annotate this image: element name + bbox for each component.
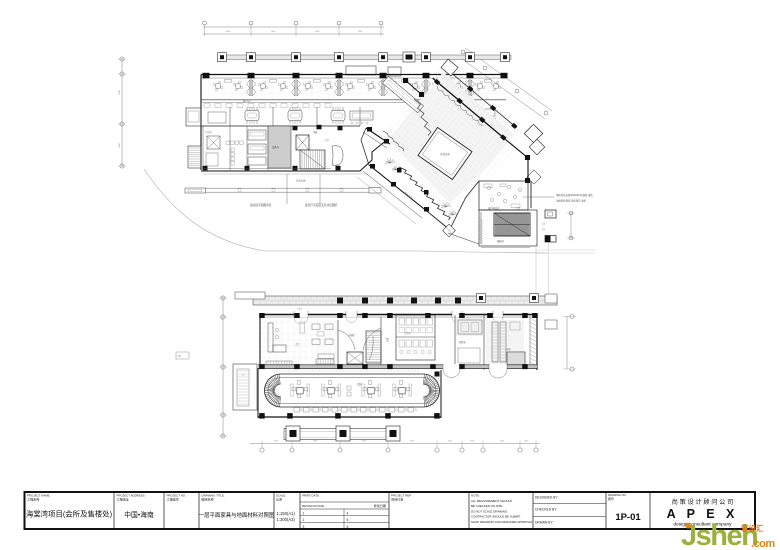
svg-text:DO NOT SCALE DRAWING.: DO NOT SCALE DRAWING. [471, 509, 508, 513]
svg-text:中国•海南: 中国•海南 [124, 510, 154, 519]
svg-text:2: 2 [303, 518, 305, 522]
svg-text:1:300(A3): 1:300(A3) [277, 517, 296, 522]
svg-text:大厅: 大厅 [295, 342, 300, 346]
svg-text:会议厅平面及天花详见图纸: 会议厅平面及天花详见图纸 [305, 203, 338, 207]
svg-text:1: 1 [303, 512, 305, 516]
svg-text:BE CHECKED ON SITE.: BE CHECKED ON SITE. [471, 504, 503, 508]
svg-text:运动馆平面图详见: 运动馆平面图详见 [250, 203, 272, 207]
svg-text:1:150(A1): 1:150(A1) [277, 511, 296, 516]
svg-text:修改日期: 修改日期 [374, 503, 386, 508]
svg-text:7500: 7500 [119, 89, 121, 95]
svg-text:海棠湾项目(会所及售楼处): 海棠湾项目(会所及售楼处) [26, 510, 112, 519]
svg-text:图纸名称: 图纸名称 [202, 497, 214, 502]
svg-text:外部走廊: 外部走廊 [296, 179, 306, 183]
svg-text:REVISION DATE :: REVISION DATE : [302, 504, 326, 508]
svg-text:DRAWN BY:: DRAWN BY: [535, 521, 553, 525]
svg-text:CONTRACTOR SHOULD BE SUBMIT: CONTRACTOR SHOULD BE SUBMIT [471, 515, 521, 519]
svg-text:电梯厅: 电梯厅 [348, 333, 356, 337]
svg-text:边框用防滑砖 深色拼花 浅色: 边框用防滑砖 深色拼花 浅色 [556, 199, 587, 203]
svg-text:工程地址: 工程地址 [117, 497, 129, 502]
svg-text:工程编号: 工程编号 [167, 497, 179, 502]
svg-text:.com: .com [751, 538, 775, 550]
svg-text:图号: 图号 [608, 496, 614, 501]
svg-text:餐厅区: 餐厅区 [243, 99, 251, 103]
svg-text:NOTE:: NOTE: [471, 494, 480, 498]
svg-text:异形泳池: 异形泳池 [440, 152, 450, 156]
svg-text:6: 6 [347, 525, 349, 529]
svg-text:DESIGNED BY :: DESIGNED BY : [535, 496, 559, 500]
svg-text:ALL MEASUREMENT SHOULD: ALL MEASUREMENT SHOULD [471, 499, 512, 503]
svg-text:SHOP DRAWING FOR DESIGNER APPR: SHOP DRAWING FOR DESIGNER APPROVAL. [471, 520, 534, 524]
svg-text:项目代表: 项目代表 [391, 497, 403, 502]
svg-text:5: 5 [347, 518, 349, 522]
svg-text:入口: 入口 [297, 306, 302, 310]
svg-text:尚 策 设 计 顾 问 公 司: 尚 策 设 计 顾 问 公 司 [672, 498, 734, 506]
svg-text:地砖拼花标准300x600 防滑砖 浅色: 地砖拼花标准300x600 防滑砖 浅色 [556, 193, 593, 197]
svg-text:比例: 比例 [276, 497, 282, 502]
svg-text:4: 4 [347, 512, 349, 516]
svg-text:工程名称: 工程名称 [27, 497, 39, 502]
svg-text:PRINT DATE :: PRINT DATE : [302, 494, 321, 498]
svg-text:筑设汇: 筑设汇 [741, 523, 764, 533]
svg-text:CHECKED BY:: CHECKED BY: [535, 508, 557, 512]
svg-text:7500: 7500 [119, 142, 121, 148]
svg-text:3: 3 [303, 525, 305, 529]
svg-text:1P-01: 1P-01 [615, 512, 641, 523]
svg-text:A P E X: A P E X [667, 507, 739, 521]
svg-text:一层平面家具与地面材料对照图: 一层平面家具与地面材料对照图 [199, 511, 274, 519]
